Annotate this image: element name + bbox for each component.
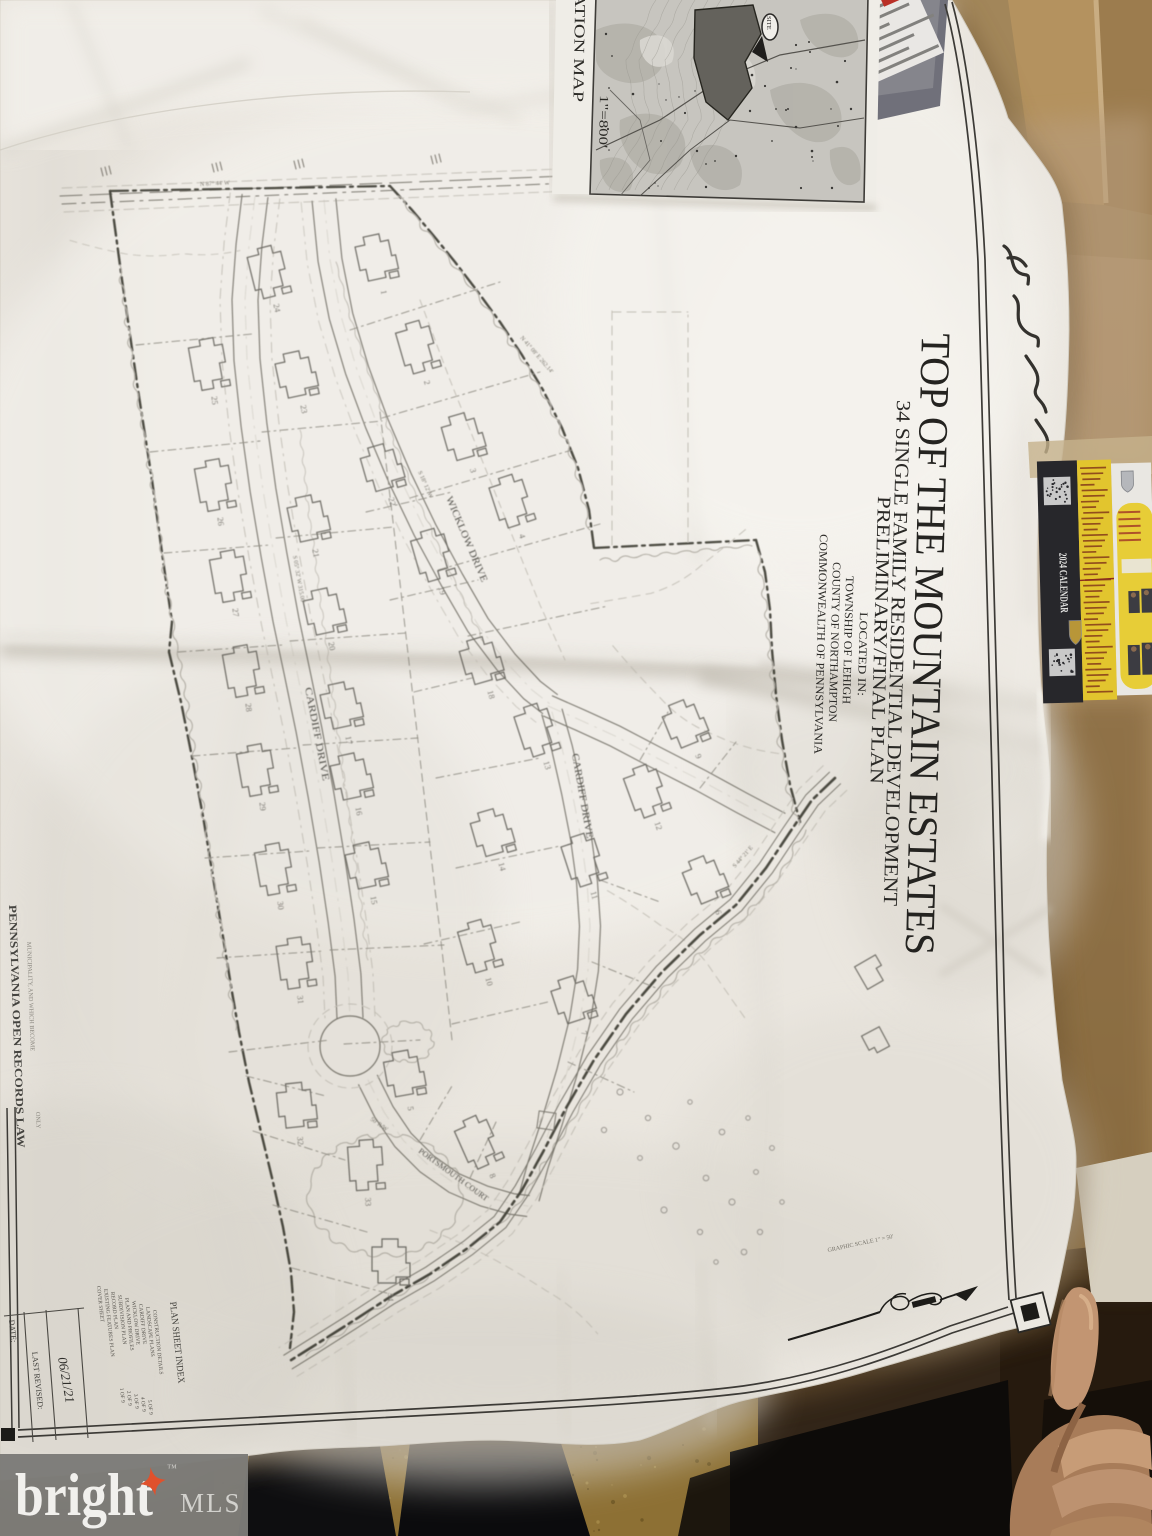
svg-text:bright: bright: [15, 1462, 153, 1528]
svg-text:21: 21: [310, 548, 321, 558]
svg-text:34: 34: [386, 1293, 396, 1303]
svg-text:2024 CALENDAR: 2024 CALENDAR: [1056, 553, 1070, 614]
svg-text:LOCATION MAP: LOCATION MAP: [569, 0, 588, 102]
svg-text:MLS: MLS: [180, 1488, 242, 1518]
svg-text:20: 20: [326, 641, 337, 651]
svg-text:™: ™: [167, 1463, 177, 1474]
svg-text:LOCATED IN:: LOCATED IN:: [855, 612, 869, 696]
svg-text:33: 33: [363, 1198, 373, 1207]
svg-text:31: 31: [295, 995, 306, 1004]
svg-text:ONLY: ONLY: [34, 1112, 42, 1129]
svg-text:17: 17: [343, 735, 354, 745]
svg-text:29: 29: [257, 802, 268, 812]
svg-text:25: 25: [209, 396, 220, 406]
svg-text:27: 27: [230, 608, 241, 618]
svg-text:15: 15: [368, 895, 379, 905]
svg-text:SITE: SITE: [765, 16, 772, 30]
svg-text:26: 26: [215, 517, 226, 527]
svg-text:1"=800': 1"=800': [596, 95, 611, 148]
svg-text:32: 32: [295, 1136, 306, 1145]
svg-text:23: 23: [298, 404, 309, 414]
svg-text:16: 16: [353, 806, 364, 816]
svg-text:30: 30: [275, 901, 286, 911]
svg-text:28: 28: [243, 703, 254, 713]
